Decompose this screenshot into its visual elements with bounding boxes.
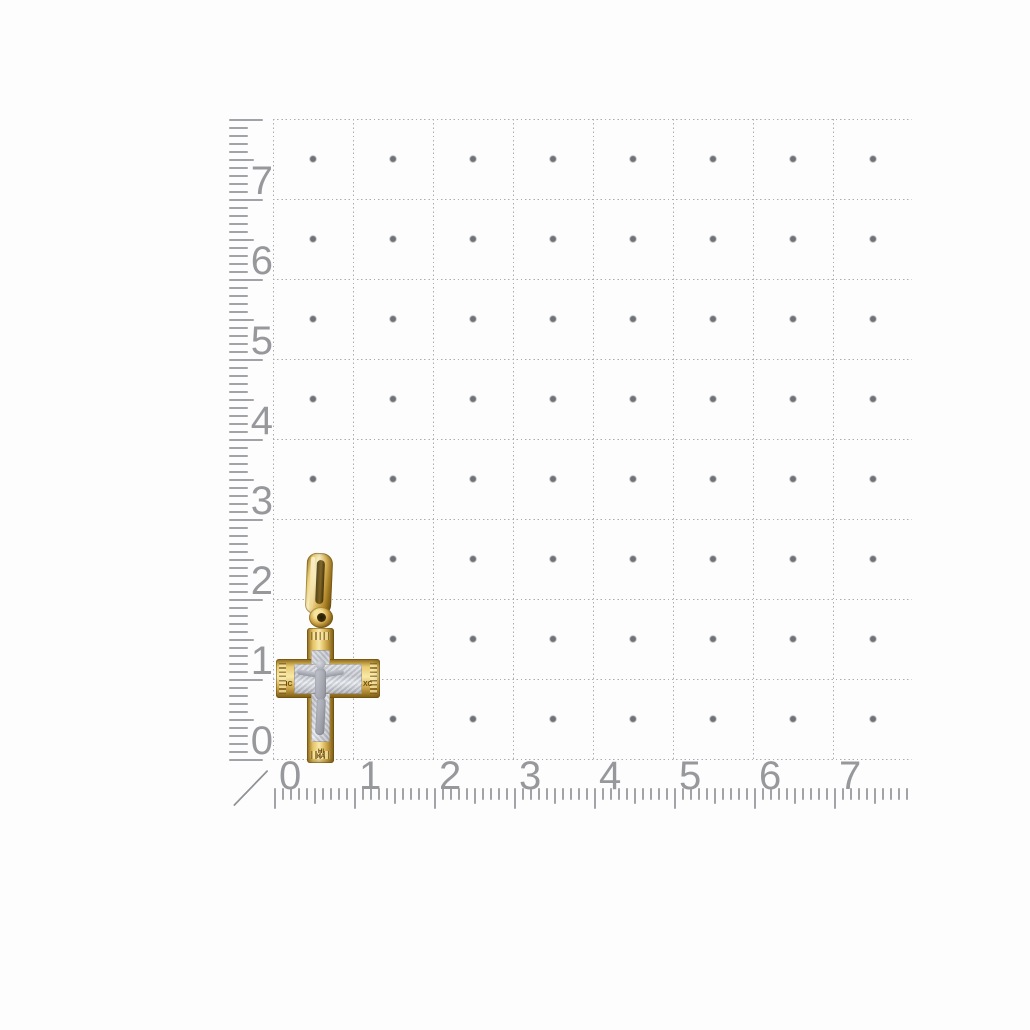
bottom-ruler-tick: [274, 788, 276, 809]
bottom-ruler-tick: [810, 788, 812, 800]
left-ruler-tick: [229, 695, 248, 697]
grid-dot: [549, 475, 557, 483]
bottom-ruler-tick: [578, 788, 580, 800]
bottom-ruler-tick: [554, 788, 556, 804]
grid-dot: [309, 235, 317, 243]
grid-dot: [549, 155, 557, 163]
grid-dot: [629, 555, 637, 563]
left-ruler-tick: [229, 527, 248, 529]
bottom-ruler-tick: [802, 788, 804, 800]
bottom-ruler-tick: [882, 788, 884, 800]
inscription-ic: ІС: [285, 681, 292, 688]
bottom-ruler-tick: [890, 788, 892, 800]
grid-dot: [549, 315, 557, 323]
left-ruler-number: 3: [228, 482, 272, 520]
bottom-ruler-tick: [402, 788, 404, 800]
left-ruler-tick: [229, 703, 248, 705]
grid-dot: [869, 715, 877, 723]
left-ruler-tick: [229, 287, 248, 289]
greek-key-pattern: [311, 632, 330, 640]
grid-dot: [629, 475, 637, 483]
grid-vertical-line: [753, 119, 754, 760]
bottom-ruler-tick: [906, 788, 908, 800]
grid-vertical-line: [593, 119, 594, 760]
left-ruler-tick: [229, 127, 248, 129]
bottom-ruler-tick: [474, 788, 476, 804]
crucifix-torso: [315, 669, 326, 700]
grid-dot: [869, 475, 877, 483]
cross-end-cap-bottom: НІ КА: [309, 741, 332, 761]
left-ruler-tick: [229, 391, 248, 393]
grid-dot: [709, 635, 717, 643]
bottom-ruler-tick: [706, 788, 708, 800]
grid-dot: [469, 315, 477, 323]
crucifix-head: [316, 660, 325, 670]
grid-dot: [869, 315, 877, 323]
bottom-ruler-tick: [746, 788, 748, 800]
left-ruler-tick: [229, 311, 248, 313]
bottom-ruler-tick: [866, 788, 868, 800]
grid-dot: [789, 555, 797, 563]
grid-dot: [869, 235, 877, 243]
grid-dot: [309, 475, 317, 483]
grid-dot: [629, 315, 637, 323]
grid-dot: [629, 715, 637, 723]
bottom-ruler-tick: [898, 788, 900, 800]
left-ruler-tick: [229, 215, 248, 217]
pendant-jump-ring: [309, 607, 333, 628]
grid-dot: [709, 395, 717, 403]
bottom-ruler-tick: [562, 788, 564, 800]
bail-slot: [315, 560, 325, 604]
bottom-ruler-tick: [394, 788, 396, 804]
grid-vertical-line: [513, 119, 514, 760]
bottom-ruler-tick: [386, 788, 388, 800]
jump-ring-hole: [317, 613, 326, 622]
left-ruler-tick: [229, 135, 248, 137]
left-ruler-tick: [229, 223, 248, 225]
bottom-ruler-tick: [754, 788, 756, 809]
bottom-ruler-tick: [738, 788, 740, 800]
bottom-ruler-tick: [346, 788, 348, 800]
grid-dot: [469, 235, 477, 243]
left-ruler-tick: [229, 711, 248, 713]
grid-dot: [789, 315, 797, 323]
cross-end-cap-left: ІС: [277, 661, 294, 696]
grid-dot: [549, 235, 557, 243]
left-ruler-number: 0: [228, 722, 272, 760]
bottom-ruler-tick: [626, 788, 628, 800]
grid-dot: [549, 395, 557, 403]
grid-dot: [389, 475, 397, 483]
grid-vertical-line: [673, 119, 674, 760]
bottom-ruler-number: 1: [359, 757, 380, 795]
grid-dot: [709, 555, 717, 563]
left-ruler-tick: [229, 119, 263, 121]
bottom-ruler-tick: [466, 788, 468, 800]
grid-dot: [469, 395, 477, 403]
grid-dot: [469, 475, 477, 483]
grid-dot: [789, 635, 797, 643]
bottom-ruler-tick: [634, 788, 636, 804]
grid-dot: [629, 395, 637, 403]
bottom-ruler-tick: [786, 788, 788, 800]
left-ruler-tick: [229, 551, 248, 553]
grid-dot: [629, 155, 637, 163]
inner-white-gold-cross-horizontal: [294, 664, 362, 694]
bottom-ruler-tick: [418, 788, 420, 800]
bottom-ruler-tick: [546, 788, 548, 800]
bottom-ruler-tick: [506, 788, 508, 800]
grid-dot: [389, 235, 397, 243]
bottom-ruler-tick: [834, 788, 836, 809]
grid-dot: [309, 155, 317, 163]
grid-dot: [309, 395, 317, 403]
bottom-ruler-tick: [330, 788, 332, 800]
grid-dot: [789, 475, 797, 483]
cross-end-cap-top: [309, 630, 332, 651]
bottom-ruler-tick: [490, 788, 492, 800]
left-ruler-tick: [229, 463, 248, 465]
cross-end-cap-right: ХС: [362, 661, 379, 696]
grid-dot: [549, 635, 557, 643]
grid-dot: [469, 635, 477, 643]
inscription-xc: ХС: [363, 681, 372, 688]
inscription-nika: НІ КА: [316, 749, 325, 759]
bottom-ruler-number: 2: [439, 757, 460, 795]
left-ruler-tick: [229, 535, 248, 537]
bottom-ruler-tick: [714, 788, 716, 804]
left-ruler-tick: [229, 455, 248, 457]
left-ruler-tick: [229, 303, 248, 305]
grid-dot: [549, 715, 557, 723]
grid-dot: [869, 395, 877, 403]
grid-dot: [869, 635, 877, 643]
bottom-ruler-tick: [794, 788, 796, 804]
left-ruler-tick: [229, 471, 248, 473]
left-ruler-number: 7: [228, 162, 272, 200]
grid-dot: [469, 155, 477, 163]
grid-dot: [549, 555, 557, 563]
grid-dot: [469, 715, 477, 723]
grid-dot: [709, 155, 717, 163]
grid-dot: [789, 715, 797, 723]
bottom-ruler-number: 5: [679, 757, 700, 795]
left-ruler-tick: [229, 687, 248, 689]
bottom-ruler-tick: [674, 788, 676, 809]
bottom-ruler-tick: [498, 788, 500, 800]
left-ruler-number: 6: [228, 242, 272, 280]
bottom-ruler-tick: [426, 788, 428, 800]
greek-key-pattern: [279, 663, 286, 694]
left-ruler-number: 2: [228, 562, 272, 600]
photo-canvas: 76543210 01234567 НІ КА ІС ХС: [0, 0, 1030, 1030]
bottom-ruler-tick: [666, 788, 668, 800]
bottom-ruler-tick: [322, 788, 324, 800]
left-ruler-tick: [229, 607, 248, 609]
bottom-ruler-tick: [658, 788, 660, 800]
left-ruler-tick: [229, 143, 248, 145]
bottom-ruler-tick: [650, 788, 652, 800]
bottom-ruler-tick: [306, 788, 308, 800]
grid-dot: [869, 155, 877, 163]
bottom-ruler-tick: [594, 788, 596, 809]
left-ruler-tick: [229, 615, 248, 617]
bottom-ruler-number: 0: [279, 757, 300, 795]
bottom-ruler-tick: [514, 788, 516, 809]
grid-dot: [389, 715, 397, 723]
bottom-ruler-tick: [482, 788, 484, 800]
left-ruler-number: 5: [228, 322, 272, 360]
bottom-ruler-tick: [570, 788, 572, 800]
bottom-ruler-tick: [338, 788, 340, 800]
grid-vertical-line: [833, 119, 834, 760]
left-ruler-tick: [229, 367, 248, 369]
left-ruler-tick: [229, 295, 248, 297]
grid-dot: [389, 395, 397, 403]
left-ruler-tick: [229, 375, 248, 377]
left-ruler-tick: [229, 151, 248, 153]
bottom-ruler-number: 6: [759, 757, 780, 795]
bottom-ruler-tick: [730, 788, 732, 800]
grid-dot: [869, 555, 877, 563]
bottom-ruler-tick: [586, 788, 588, 800]
bottom-ruler-tick: [314, 788, 316, 804]
bottom-ruler-number: 3: [519, 757, 540, 795]
left-ruler-tick: [229, 383, 248, 385]
grid-vertical-line: [273, 119, 274, 760]
grid-dot: [309, 315, 317, 323]
bottom-ruler-number: 7: [839, 757, 860, 795]
grid-vertical-line: [433, 119, 434, 760]
left-ruler-tick: [229, 543, 248, 545]
grid-dot: [789, 235, 797, 243]
grid-dot: [389, 155, 397, 163]
grid-dot: [709, 715, 717, 723]
bottom-ruler-tick: [874, 788, 876, 804]
grid-dot: [709, 235, 717, 243]
left-ruler-number: 1: [228, 642, 272, 680]
grid-dot: [789, 155, 797, 163]
bottom-ruler-number: 4: [599, 757, 620, 795]
bottom-ruler-tick: [354, 788, 356, 809]
left-ruler-number: 4: [228, 402, 272, 440]
left-ruler-tick: [229, 447, 248, 449]
greek-key-pattern: [370, 663, 377, 694]
bottom-ruler-tick: [722, 788, 724, 800]
grid-dot: [709, 475, 717, 483]
grid-dot: [469, 555, 477, 563]
bottom-ruler-tick: [826, 788, 828, 800]
grid-dot: [389, 635, 397, 643]
left-ruler-tick: [229, 231, 248, 233]
pendant-bail: [305, 552, 334, 614]
left-ruler-tick: [229, 207, 248, 209]
bottom-ruler-tick: [818, 788, 820, 800]
bottom-ruler-tick: [434, 788, 436, 809]
left-ruler-tick: [229, 623, 248, 625]
grid-dot: [389, 555, 397, 563]
left-ruler-tick: [229, 631, 248, 633]
grid-dot: [789, 395, 797, 403]
grid-dot: [389, 315, 397, 323]
bottom-ruler-tick: [410, 788, 412, 800]
bail-highlight: [309, 557, 315, 607]
grid-dot: [629, 235, 637, 243]
grid-dot: [709, 315, 717, 323]
crucifix-legs: [315, 698, 326, 735]
bottom-ruler-tick: [642, 788, 644, 800]
grid-dot: [629, 635, 637, 643]
ruler-corner-slash: [233, 770, 268, 807]
